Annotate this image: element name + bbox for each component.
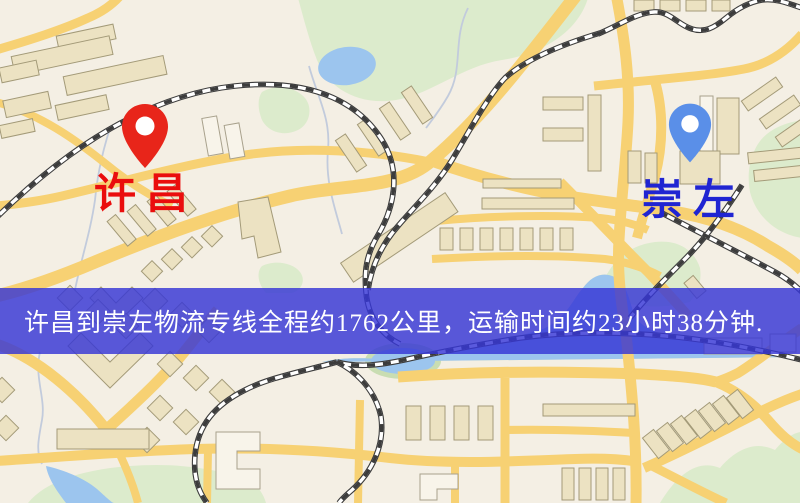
destination-city-label: 崇左 — [641, 179, 745, 221]
origin-city-label: 许昌 — [94, 173, 198, 215]
map: 许昌 崇左 许昌到崇左物流专线全程约1762公里，运输时间约23小时38分钟. — [0, 0, 800, 503]
destination-pin-icon — [668, 101, 712, 165]
route-info-text: 许昌到崇左物流专线全程约1762公里，运输时间约23小时38分钟. — [0, 303, 763, 339]
origin-pin — [121, 103, 169, 169]
origin-pin-icon — [121, 103, 169, 169]
map-canvas — [0, 0, 800, 503]
route-info-banner: 许昌到崇左物流专线全程约1762公里，运输时间约23小时38分钟. — [0, 288, 800, 354]
destination-pin — [668, 101, 712, 165]
